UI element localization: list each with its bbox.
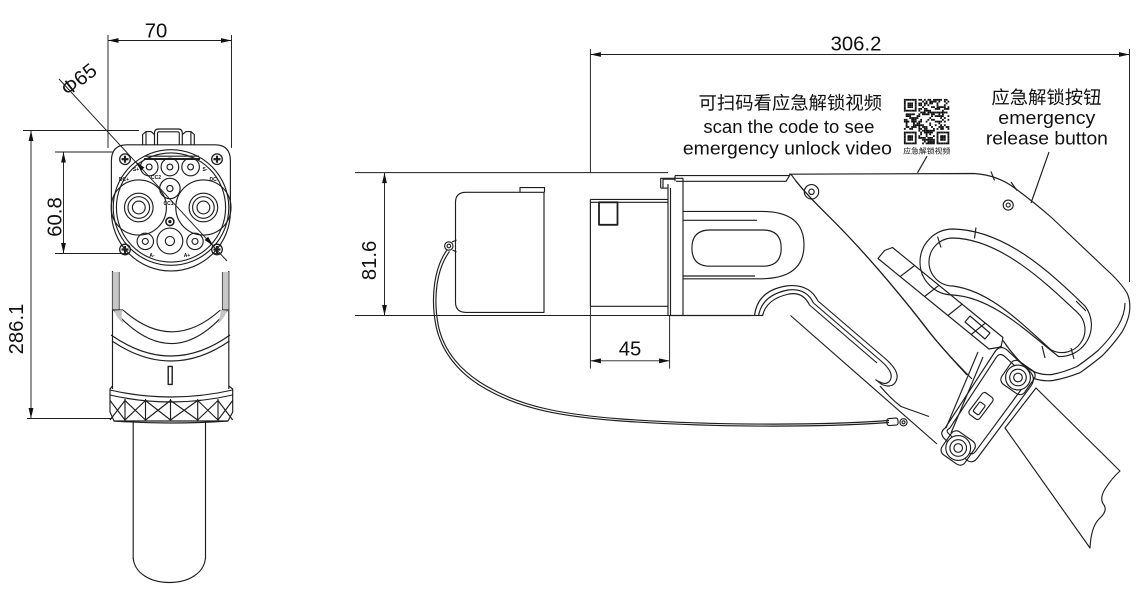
svg-text:70: 70	[145, 21, 168, 43]
svg-text:emergency: emergency	[998, 107, 1096, 128]
svg-text:DC+: DC+	[119, 177, 129, 183]
svg-text:release button: release button	[986, 128, 1108, 149]
svg-text:scan the code to see: scan the code to see	[703, 116, 874, 137]
svg-text:DC-: DC-	[210, 177, 219, 183]
svg-text:S-: S-	[203, 167, 208, 173]
svg-text:286.1: 286.1	[6, 304, 28, 355]
svg-text:60.8: 60.8	[45, 197, 67, 236]
svg-text:81.6: 81.6	[359, 241, 381, 280]
svg-text:A-: A-	[149, 253, 155, 259]
svg-text:306.2: 306.2	[831, 34, 882, 56]
svg-text:45: 45	[619, 339, 642, 361]
svg-text:S+: S+	[133, 167, 139, 173]
svg-text:emergency unlock video: emergency unlock video	[683, 138, 892, 159]
svg-text:A+: A+	[184, 253, 191, 259]
